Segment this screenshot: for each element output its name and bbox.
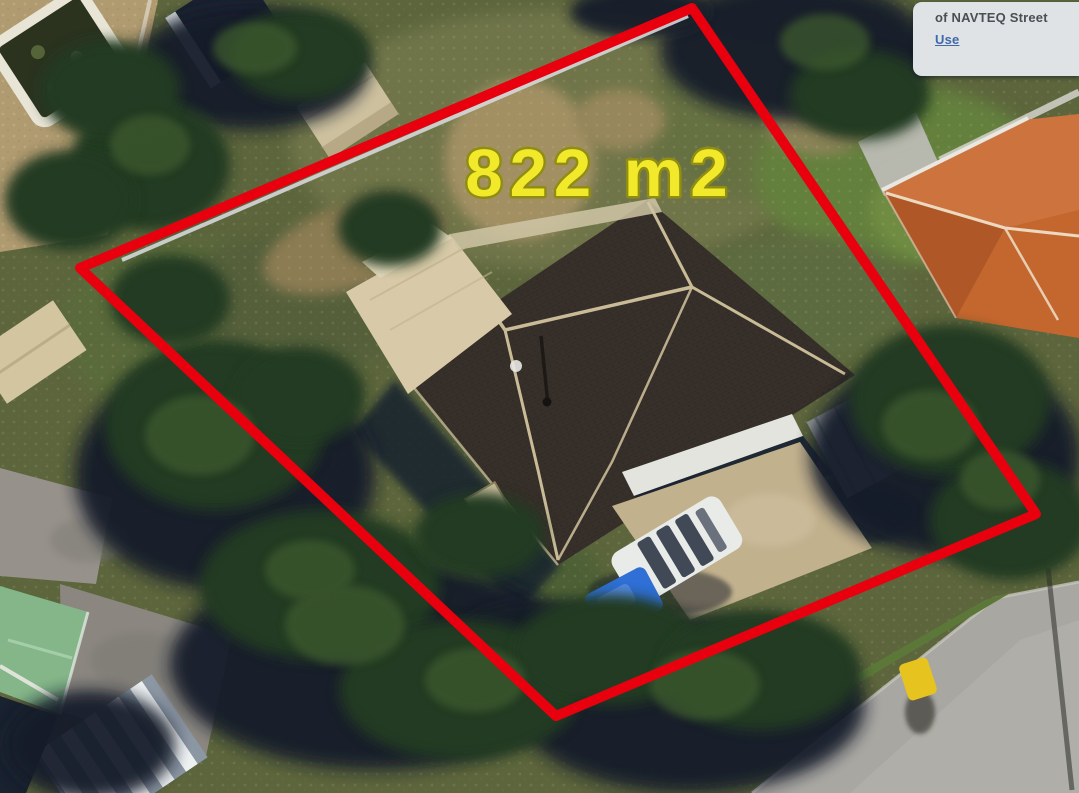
satellite-dish — [510, 360, 522, 372]
aerial-imagery: 822 m2 — [0, 0, 1079, 793]
terms-of-use-link[interactable]: Use — [935, 33, 959, 48]
attribution-text: of NAVTEQ Street — [935, 11, 1075, 26]
map-attribution: of NAVTEQ Street Use — [913, 2, 1079, 76]
area-label: 822 m2 — [465, 136, 734, 211]
satellite-map-view: 822 m2 of NAVTEQ Street Use — [0, 0, 1079, 793]
